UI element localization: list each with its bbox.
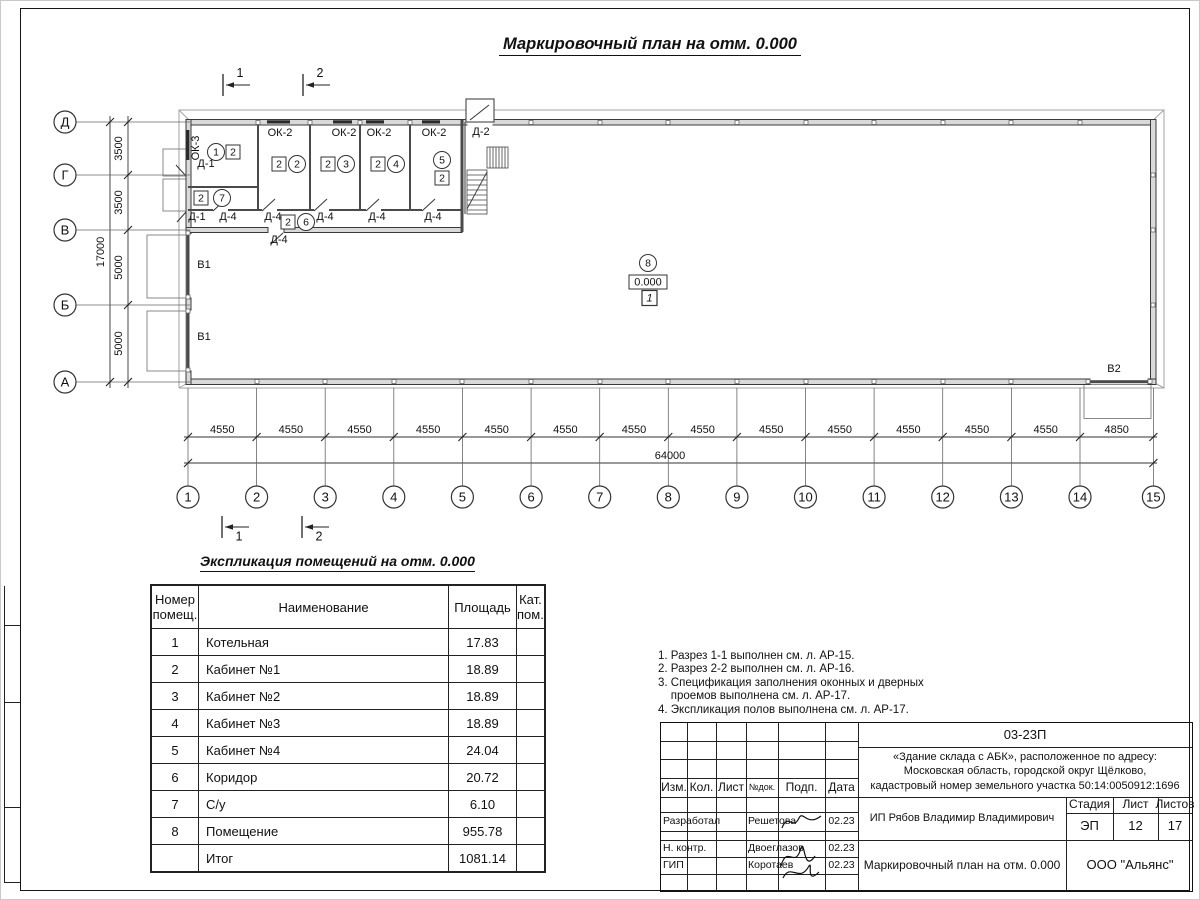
table-cell: 1 [151, 629, 199, 656]
table-cell [517, 791, 545, 818]
generated-annotations: ДГВБА35003500500050001700012345678910111… [54, 66, 1164, 544]
table-row: 2Кабинет №118.89 [151, 656, 545, 683]
person-date: 02.23 [825, 812, 858, 831]
wall-tick [1148, 380, 1152, 384]
wall-tick [872, 380, 876, 384]
dimension-value: 5000 [113, 255, 125, 279]
opening-label: Д-4 [270, 234, 287, 246]
table-row: 3Кабинет №218.89 [151, 683, 545, 710]
table-row: 5Кабинет №424.04 [151, 737, 545, 764]
room-number: 2 [294, 159, 300, 171]
room-number: 3 [343, 159, 349, 171]
room-number: 4 [393, 159, 399, 171]
wall-tick [308, 121, 312, 125]
wall-tick [1009, 380, 1013, 384]
canopy-outline [179, 110, 1164, 388]
zone-number: 1 [646, 293, 652, 305]
axis-label: 5 [459, 490, 466, 505]
opening-label: В2 [1107, 363, 1120, 375]
table-cell [517, 683, 545, 710]
project-code: 03-23П [858, 725, 1192, 745]
stamp-line [661, 874, 858, 875]
axis-label: 12 [935, 490, 949, 505]
stamp-line [661, 831, 858, 832]
table-cell: Кабинет №1 [199, 656, 449, 683]
table-cell [517, 710, 545, 737]
rev-header-ndok: №док. [746, 778, 778, 797]
table-cell [517, 737, 545, 764]
person-date: 02.23 [825, 840, 858, 857]
opening-label: Д-1 [197, 158, 214, 170]
dimension-value: 4550 [759, 424, 783, 436]
stamp-line [858, 723, 859, 891]
opening-label: Д-2 [472, 126, 489, 138]
table-cell: 6.10 [449, 791, 517, 818]
room-number: 8 [645, 258, 651, 270]
section-arrowhead [226, 82, 234, 87]
col-header-number: Номер помещ. [151, 585, 199, 629]
opening-label: Д-4 [264, 211, 281, 223]
axis-label: 1 [184, 490, 191, 505]
room-number: 5 [439, 155, 445, 167]
drawing-sheet: Маркировочный план на отм. 0.000 [0, 0, 1200, 900]
wall-tick [186, 309, 190, 313]
dimension-value: 4550 [347, 424, 371, 436]
dimension-value: 4550 [896, 424, 920, 436]
person-role: Н. контр. [663, 840, 746, 857]
opening-label: Д-4 [424, 211, 441, 223]
axis-label: В [61, 223, 70, 238]
sheets-total: 17 [1158, 813, 1192, 840]
axis-label: 2 [253, 490, 260, 505]
person-role: Разработал [663, 812, 746, 831]
table-cell [151, 845, 199, 873]
section-arrowhead [225, 524, 233, 529]
dimension-total: 64000 [655, 450, 686, 462]
dimension-value: 5000 [113, 331, 125, 355]
table-cell: 18.89 [449, 710, 517, 737]
axis-label: 7 [596, 490, 603, 505]
dimension-value: 4550 [622, 424, 646, 436]
table-cell: 20.72 [449, 764, 517, 791]
wall-tick [408, 121, 412, 125]
dimension-value: 4550 [416, 424, 440, 436]
category-value: 2 [439, 173, 445, 185]
category-value: 2 [198, 193, 204, 205]
stamp-line [661, 741, 858, 742]
table-cell: 2 [151, 656, 199, 683]
table-row: 8Помещение955.78 [151, 818, 545, 845]
axis-label: Д [61, 115, 70, 130]
opening-label: ОК-2 [268, 127, 293, 139]
opening-label: ОК-2 [422, 127, 447, 139]
opening-label: Д-4 [219, 211, 236, 223]
dimension-total: 17000 [95, 237, 107, 268]
table-cell [517, 656, 545, 683]
section-mark-label: 1 [237, 66, 244, 80]
wall-tick [1009, 121, 1013, 125]
section-arrowhead [305, 524, 313, 529]
stamp-line [746, 723, 747, 891]
col-header-name: Наименование [199, 585, 449, 629]
room-table-body: 1Котельная17.832Кабинет №118.893Кабинет … [151, 629, 545, 873]
axis-label: 8 [665, 490, 672, 505]
wall-tick [392, 380, 396, 384]
table-cell [517, 845, 545, 873]
table-cell: Кабинет №4 [199, 737, 449, 764]
wall-tick [666, 121, 670, 125]
opening-label: Д-1 [188, 211, 205, 223]
wall-tick [735, 121, 739, 125]
wall-tick [666, 380, 670, 384]
opening-label: ОК-2 [332, 127, 357, 139]
axis-label: 14 [1073, 490, 1087, 505]
room-table-title: Экспликация помещений на отм. 0.000 [200, 553, 475, 569]
axis-label: 4 [390, 490, 397, 505]
project-description: «Здание склада с АБК», расположенное по … [861, 748, 1189, 795]
wall-tick [1151, 303, 1155, 307]
room-number: 6 [303, 217, 309, 229]
wall-tick [529, 380, 533, 384]
wall-tick [598, 380, 602, 384]
dimension-value: 4550 [965, 424, 989, 436]
title-block: 03-23П «Здание склада с АБК», расположен… [660, 722, 1193, 892]
rev-header-izm: Изм. [661, 778, 687, 797]
table-cell: Котельная [199, 629, 449, 656]
dimension-value: 4550 [553, 424, 577, 436]
wall-tick [186, 295, 190, 299]
axis-label: 11 [867, 490, 881, 505]
person-role: ГИП [663, 857, 746, 874]
wall-tick [804, 121, 808, 125]
signature [775, 838, 825, 888]
dimension-value: 4550 [279, 424, 303, 436]
axis-label: А [61, 375, 70, 390]
opening-label: ОК-3 [190, 136, 202, 161]
table-cell: Помещение [199, 818, 449, 845]
room-schedule-table: Номер помещ. Наименование Площадь Кат. п… [150, 584, 546, 873]
table-row: 7С/у6.10 [151, 791, 545, 818]
category-value: 2 [230, 147, 236, 159]
wall-tick [255, 380, 259, 384]
table-cell: 955.78 [449, 818, 517, 845]
room-number: 7 [219, 193, 225, 205]
opening-label: Д-4 [316, 211, 333, 223]
section-mark-label: 1 [236, 530, 243, 544]
wall-tick [1151, 173, 1155, 177]
staircase [467, 147, 508, 214]
table-row: 4Кабинет №318.89 [151, 710, 545, 737]
wall-tick [256, 121, 260, 125]
section-mark-label: 2 [316, 530, 323, 544]
opening-label: В1 [197, 259, 210, 271]
category-value: 2 [276, 159, 282, 171]
rev-header-kol: Кол. [687, 778, 716, 797]
stamp-sheet-name: Маркировочный план на отм. 0.000 [861, 840, 1063, 891]
table-cell: 3 [151, 683, 199, 710]
dimension-value: 3500 [113, 190, 125, 214]
wall-tick [323, 380, 327, 384]
table-row: 1Котельная17.83 [151, 629, 545, 656]
table-cell: 8 [151, 818, 199, 845]
wall-tick [941, 121, 945, 125]
dimension-value: 4850 [1104, 424, 1128, 436]
table-cell: 24.04 [449, 737, 517, 764]
rev-header-list: Лист [716, 778, 746, 797]
wall-tick [872, 121, 876, 125]
elevation-value: 0.000 [634, 277, 662, 289]
table-cell: Кабинет №2 [199, 683, 449, 710]
sheet-number: 12 [1113, 813, 1158, 840]
axis-label: 13 [1004, 490, 1018, 505]
table-cell: 4 [151, 710, 199, 737]
company-name: ООО "Альянс" [1068, 840, 1192, 891]
wall-tick [460, 380, 464, 384]
wall-tick [186, 231, 190, 235]
table-cell: Итог [199, 845, 449, 873]
wall-tick [1086, 380, 1090, 384]
rev-header-podp: Подп. [778, 778, 825, 797]
wall-tick [1078, 121, 1082, 125]
table-cell [517, 629, 545, 656]
table-cell [517, 764, 545, 791]
axis-label: Г [61, 168, 68, 183]
vestibule-d2 [466, 99, 494, 126]
wall-tick [1151, 228, 1155, 232]
person-date: 02.23 [825, 857, 858, 874]
wall-tick [804, 380, 808, 384]
table-cell: 5 [151, 737, 199, 764]
dimension-value: 3500 [113, 136, 125, 160]
wall-tick [529, 121, 533, 125]
category-value: 2 [325, 159, 331, 171]
table-cell: 18.89 [449, 656, 517, 683]
table-row: Итог1081.14 [151, 845, 545, 873]
rev-header-data: Дата [825, 778, 858, 797]
sheets-header: Листов [1158, 797, 1192, 813]
table-cell: 18.89 [449, 683, 517, 710]
opening-label: Д-4 [368, 211, 385, 223]
table-cell: 17.83 [449, 629, 517, 656]
col-header-category: Кат. пом. [517, 585, 545, 629]
table-cell: 1081.14 [449, 845, 517, 873]
stamp-line [661, 759, 858, 760]
table-cell: Коридор [199, 764, 449, 791]
stage-header: Стадия [1066, 797, 1113, 813]
notes: 1. Разрез 1-1 выполнен см. л. АР-15. 2. … [658, 650, 924, 717]
col-header-area: Площадь [449, 585, 517, 629]
axis-label: 6 [527, 490, 534, 505]
dimension-value: 4550 [484, 424, 508, 436]
axis-label: 9 [733, 490, 740, 505]
section-mark-label: 2 [317, 66, 324, 80]
table-cell: С/у [199, 791, 449, 818]
client-name: ИП Рябов Владимир Владимирович [861, 797, 1063, 840]
signature [778, 810, 825, 832]
axis-label: 3 [322, 490, 329, 505]
wall-tick [941, 380, 945, 384]
axis-label: 10 [798, 490, 812, 505]
opening-label: В1 [197, 331, 210, 343]
wall-tick [186, 368, 190, 372]
table-cell: 7 [151, 791, 199, 818]
table-cell: Кабинет №3 [199, 710, 449, 737]
axis-label: Б [61, 298, 70, 313]
table-cell: 6 [151, 764, 199, 791]
stamp-line [661, 797, 858, 798]
stage-value: ЭП [1066, 813, 1113, 840]
category-value: 2 [375, 159, 381, 171]
gate-leaves [186, 234, 1150, 384]
axis-label: 15 [1146, 490, 1160, 505]
wall-tick [735, 380, 739, 384]
opening-label: ОК-2 [367, 127, 392, 139]
category-value: 2 [285, 217, 291, 229]
dimension-value: 4550 [828, 424, 852, 436]
wall-tick [598, 121, 602, 125]
table-cell [517, 818, 545, 845]
section-arrowhead [306, 82, 314, 87]
wall-tick [358, 121, 362, 125]
table-row: 6Коридор20.72 [151, 764, 545, 791]
dimension-value: 4550 [1033, 424, 1057, 436]
sheet-header: Лист [1113, 797, 1158, 813]
dimension-value: 4550 [690, 424, 714, 436]
room-number: 1 [213, 147, 219, 159]
dimension-value: 4550 [210, 424, 234, 436]
